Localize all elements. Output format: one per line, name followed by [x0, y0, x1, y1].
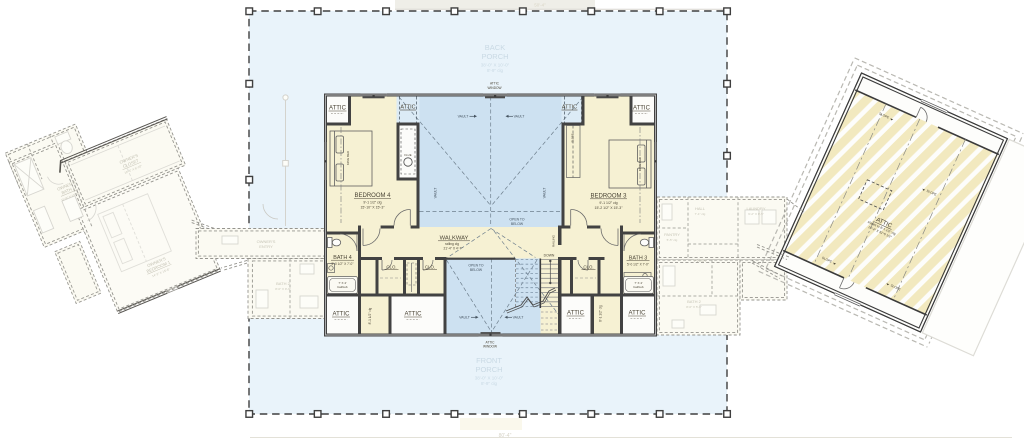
- svg-text:PORCH: PORCH: [481, 52, 508, 61]
- svg-text:ATTIC: ATTIC: [629, 311, 647, 317]
- svg-text:BATH 2: BATH 2: [687, 299, 701, 304]
- svg-text:9'-1 1/2" clg: 9'-1 1/2" clg: [363, 201, 381, 205]
- svg-text:FRONT: FRONT: [476, 356, 502, 365]
- svg-text:CLO.: CLO.: [425, 265, 435, 270]
- svg-text:FLUE: FLUE: [404, 153, 411, 157]
- svg-text:WINDOW: WINDOW: [483, 345, 497, 349]
- svg-text:DOWN: DOWN: [544, 253, 555, 257]
- svg-text:ATTIC: ATTIC: [329, 106, 347, 112]
- svg-text:5'-0 1/2" X 7'-0": 5'-0 1/2" X 7'-0": [332, 262, 354, 266]
- svg-text:BACK: BACK: [485, 43, 505, 52]
- svg-text:5'-5" clg: 5'-5" clg: [667, 238, 678, 242]
- svg-text:80'-4": 80'-4": [499, 433, 512, 439]
- svg-text:8'-0" X 5'-6": 8'-0" X 5'-6": [686, 305, 702, 309]
- svg-text:BATH 2: BATH 2: [276, 281, 290, 286]
- svg-text:bathtub: bathtub: [633, 285, 643, 289]
- svg-text:OPEN TO: OPEN TO: [468, 264, 483, 268]
- svg-text:ATTIC: ATTIC: [333, 312, 351, 318]
- svg-text:15'-10" X 15'-3": 15'-10" X 15'-3": [360, 206, 385, 210]
- svg-text:CLO.: CLO.: [386, 265, 396, 270]
- svg-text:ATTIC: ATTIC: [562, 105, 577, 111]
- svg-text:38'-0" X 10'-0": 38'-0" X 10'-0": [475, 376, 504, 381]
- svg-text:PANTRY: PANTRY: [664, 232, 680, 237]
- svg-text:ATTIC: ATTIC: [490, 82, 500, 86]
- svg-text:PORCH: PORCH: [475, 365, 502, 374]
- svg-text:CLO.: CLO.: [583, 265, 593, 270]
- svg-text:BELOW: BELOW: [511, 222, 524, 226]
- svg-text:VAULT: VAULT: [434, 187, 438, 199]
- svg-text:15'-2 1/2" X 15'-3": 15'-2 1/2" X 15'-3": [595, 206, 624, 210]
- svg-text:PWDR: PWDR: [694, 258, 706, 263]
- svg-text:BELOW: BELOW: [470, 268, 483, 272]
- svg-text:50'-4": 50'-4": [534, 3, 546, 8]
- svg-text:VAULT: VAULT: [459, 316, 471, 320]
- svg-text:8'-9" clg: 8'-9" clg: [487, 68, 503, 73]
- svg-text:21'-4" X 4'-7": 21'-4" X 4'-7": [444, 246, 464, 250]
- svg-text:VAULT: VAULT: [513, 316, 525, 320]
- svg-text:SLOPE: SLOPE: [571, 133, 575, 142]
- svg-text:bathtub: bathtub: [337, 285, 347, 289]
- svg-text:ATTIC: ATTIC: [400, 105, 415, 111]
- svg-text:ATTIC: ATTIC: [567, 311, 585, 317]
- svg-text:8'-9" clg: 8'-9" clg: [481, 381, 497, 386]
- svg-text:KING BED: KING BED: [346, 150, 350, 165]
- svg-text:ATTIC: ATTIC: [405, 312, 423, 318]
- svg-text:VAULT: VAULT: [514, 115, 526, 119]
- svg-text:5'-0 1/2" X 7'-0": 5'-0 1/2" X 7'-0": [627, 262, 649, 266]
- svg-text:8'-0" X 9'-6": 8'-0" X 9'-6": [275, 287, 291, 291]
- svg-text:9'-1 1/2" clg: 9'-1 1/2" clg: [599, 201, 617, 205]
- svg-text:WINDOW: WINDOW: [488, 86, 502, 90]
- svg-text:6'-2" X 8'-5": 6'-2" X 8'-5": [748, 212, 764, 216]
- svg-text:8'-1 1/2" clg: 8'-1 1/2" clg: [599, 305, 603, 322]
- svg-text:LAUNDRY: LAUNDRY: [746, 206, 765, 211]
- svg-text:7'-1" clg: 7'-1" clg: [695, 212, 706, 216]
- svg-text:ENTRY: ENTRY: [259, 244, 273, 249]
- svg-text:8'-1 1/2" clg: 8'-1 1/2" clg: [368, 307, 372, 324]
- svg-text:VAULT: VAULT: [458, 115, 470, 119]
- svg-text:railing clg: railing clg: [445, 242, 459, 246]
- svg-text:38'-0" X 10'-0": 38'-0" X 10'-0": [481, 63, 510, 68]
- svg-text:OPEN TO: OPEN TO: [509, 218, 524, 222]
- svg-text:HALL: HALL: [695, 206, 706, 211]
- svg-text:VAULT: VAULT: [543, 187, 547, 199]
- svg-text:ATTIC: ATTIC: [633, 106, 651, 112]
- svg-text:KING BED: KING BED: [638, 156, 642, 171]
- svg-text:RAILING: RAILING: [552, 234, 556, 247]
